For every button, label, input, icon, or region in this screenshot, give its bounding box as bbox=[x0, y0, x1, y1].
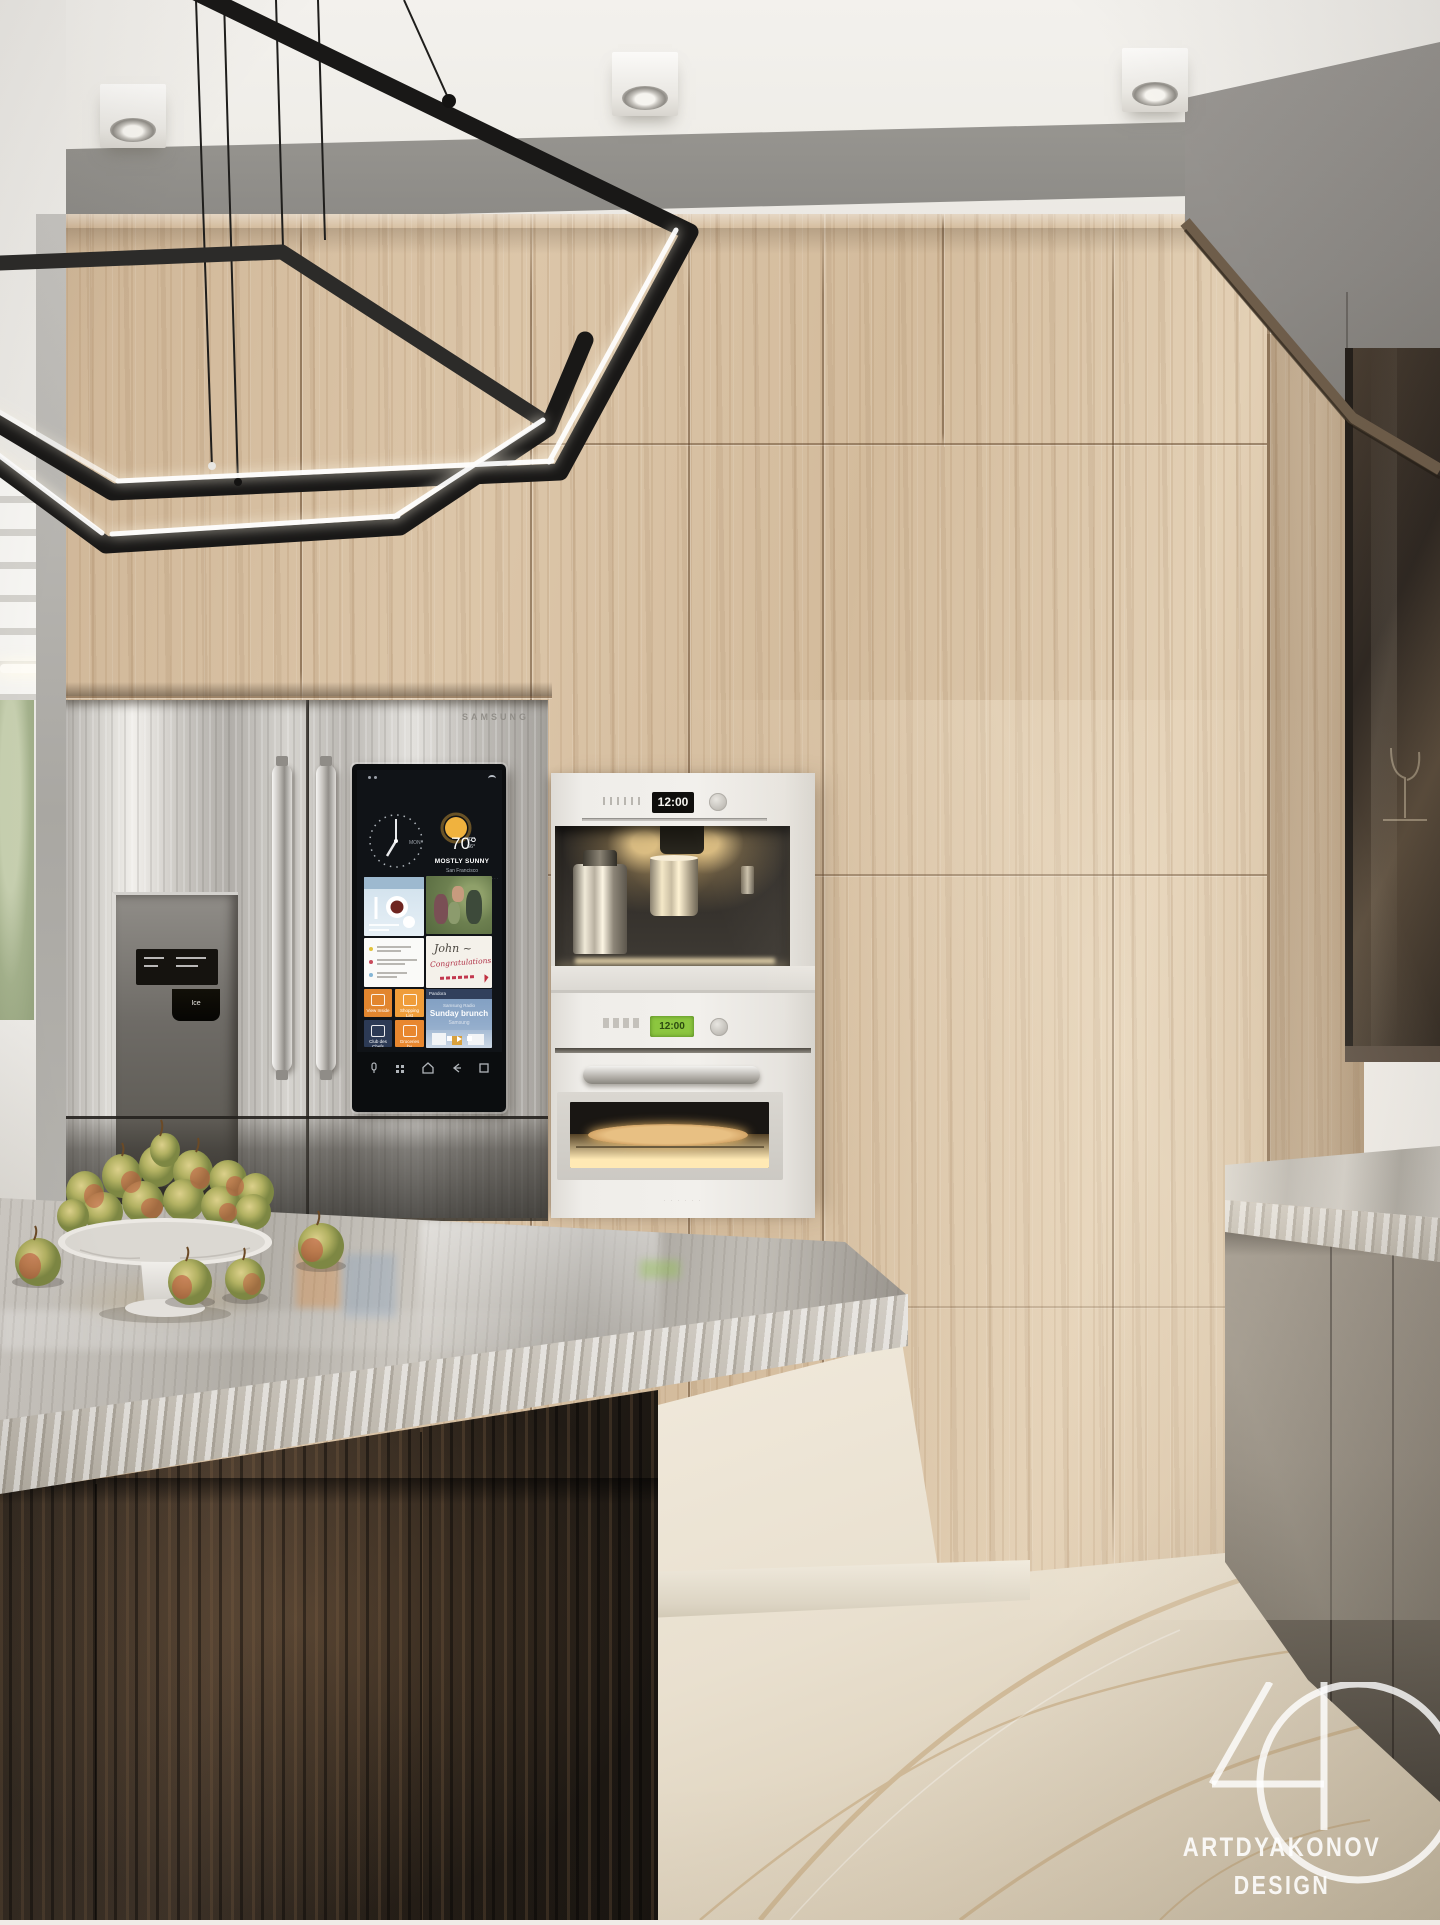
oven-logo: · · · · · · bbox=[551, 1198, 815, 1204]
oven-display: 12:00 bbox=[650, 1016, 694, 1037]
agenda-text-bar bbox=[377, 963, 405, 965]
pear-cluster bbox=[57, 1120, 274, 1233]
weather-temp: 70° bbox=[427, 834, 501, 854]
hexagon-ring-middle bbox=[0, 252, 548, 424]
kitchen-render: { "watermark": { "monogram": "AD", "line… bbox=[0, 0, 1440, 1920]
list-icon bbox=[403, 994, 417, 1006]
agenda-text-bar bbox=[377, 972, 407, 974]
pendant-lights bbox=[0, 0, 1440, 620]
coffee-machine-display: 12:00 bbox=[652, 792, 694, 813]
basket-icon bbox=[403, 1025, 417, 1037]
music-artist: Samsung bbox=[426, 1020, 492, 1026]
mic-icon[interactable] bbox=[369, 1062, 379, 1074]
prev-icon bbox=[447, 1036, 452, 1041]
app-tile-shopping-list[interactable]: Shopping List bbox=[395, 989, 424, 1017]
coffee-glass bbox=[650, 858, 698, 916]
oven-touch-controls[interactable] bbox=[603, 1018, 643, 1028]
playback-controls[interactable] bbox=[426, 1036, 492, 1042]
note-scribble bbox=[440, 975, 474, 980]
widget-header bbox=[364, 877, 424, 889]
music-widget[interactable]: Pandora Samsung Radio Sunday brunch Sams… bbox=[426, 989, 492, 1048]
agenda-text-bar bbox=[377, 959, 417, 961]
weather-updated: · · · bbox=[492, 876, 498, 881]
oven-handle[interactable] bbox=[583, 1066, 760, 1084]
counter-overhang-shadow bbox=[0, 1478, 660, 1504]
app-tile-view-inside[interactable]: View Inside bbox=[364, 989, 392, 1017]
agenda-widget[interactable] bbox=[364, 938, 424, 987]
fruit-bowl bbox=[0, 1100, 380, 1340]
studio-name: ARTDYAKONOV bbox=[1180, 1832, 1385, 1863]
music-app-name: Pandora bbox=[426, 989, 492, 999]
hexagon-ring-large bbox=[0, 0, 690, 492]
appliance-column: 12:00 12:00 · · · · · · bbox=[551, 773, 815, 1218]
fridge-right-handle[interactable] bbox=[316, 764, 336, 1072]
fridge-icon bbox=[371, 994, 385, 1006]
baking-tray bbox=[588, 1124, 748, 1146]
island-panel-seam bbox=[420, 1432, 422, 1920]
note-message: Congratulations! bbox=[430, 956, 490, 969]
family-hub-screen[interactable]: MON 70° 82°66° MOSTLY SUNNY San Francisc… bbox=[352, 764, 506, 1112]
coffee-touch-controls[interactable] bbox=[603, 797, 643, 805]
back-icon[interactable] bbox=[450, 1062, 462, 1074]
oven-door[interactable] bbox=[557, 1092, 783, 1180]
coffee-vent-slot bbox=[582, 818, 767, 821]
dispenser-panel bbox=[136, 949, 218, 985]
weather-condition: MOSTLY SUNNY bbox=[423, 858, 501, 865]
studio-subtitle: DESIGN bbox=[1180, 1870, 1385, 1901]
music-station: Samsung Radio bbox=[426, 1003, 492, 1008]
oven-knob[interactable] bbox=[710, 1018, 728, 1036]
agenda-dot bbox=[369, 973, 373, 977]
coffee-widget[interactable] bbox=[364, 877, 424, 936]
photo-figure bbox=[448, 902, 460, 924]
play-icon bbox=[457, 1036, 462, 1042]
note-pin-icon bbox=[480, 974, 488, 983]
cable-ball bbox=[208, 462, 216, 470]
pendant-cables bbox=[196, 0, 449, 484]
agenda-text-bar bbox=[377, 976, 397, 978]
family-photo-tile[interactable] bbox=[426, 876, 492, 934]
cable-ball bbox=[234, 478, 242, 486]
oven-panel-gap bbox=[555, 1048, 811, 1053]
hexagon-ring-low bbox=[0, 340, 585, 545]
screen-nav-bar[interactable] bbox=[357, 1058, 502, 1078]
cabinet-trim bbox=[1345, 1046, 1440, 1062]
niche-light bbox=[575, 958, 775, 964]
chef-icon bbox=[371, 1025, 385, 1037]
window-icon[interactable] bbox=[478, 1062, 490, 1074]
cabinet-bottom-seam bbox=[66, 696, 552, 698]
coffee-machine-knob[interactable] bbox=[709, 793, 727, 811]
screen-content: MON 70° 82°66° MOSTLY SUNNY San Francisc… bbox=[357, 770, 502, 1052]
app-tile-groceries[interactable]: Groceries by MasterCard bbox=[395, 1020, 424, 1047]
photo-figure bbox=[452, 886, 464, 902]
display-reflection bbox=[640, 1260, 680, 1278]
memo-note-tile[interactable]: John ~ Congratulations! bbox=[426, 936, 492, 988]
agenda-text-bar bbox=[377, 950, 401, 952]
music-title: Sunday brunch bbox=[426, 1009, 492, 1018]
ice-paddle[interactable]: Ice bbox=[172, 989, 220, 1021]
fridge-brand: SAMSUNG bbox=[462, 712, 529, 722]
widget-text-bar bbox=[369, 924, 399, 926]
next-icon bbox=[467, 1036, 472, 1041]
coffee-spout bbox=[660, 826, 704, 854]
agenda-text-bar bbox=[377, 946, 411, 948]
fridge-left-handle[interactable] bbox=[272, 764, 292, 1072]
svg-text:MON: MON bbox=[409, 840, 421, 846]
oven-rack bbox=[576, 1146, 764, 1148]
photo-figure bbox=[434, 894, 448, 924]
oven-window bbox=[570, 1102, 769, 1168]
agenda-dot bbox=[369, 960, 373, 964]
weather-location: San Francisco bbox=[423, 868, 501, 874]
coffee-niche bbox=[555, 826, 790, 966]
cabinet-shadow bbox=[66, 682, 552, 696]
window-greenery bbox=[0, 700, 34, 1020]
watermark-logo: ARTDYAKONOV DESIGN bbox=[1152, 1682, 1440, 1920]
weather-hi-lo: 82°66° bbox=[467, 837, 475, 851]
home-icon[interactable] bbox=[422, 1062, 434, 1074]
widget-text-bar bbox=[369, 929, 389, 931]
note-name: John ~ bbox=[434, 942, 472, 955]
apps-grid-icon[interactable] bbox=[395, 1062, 405, 1074]
cable-ball bbox=[442, 94, 456, 108]
coffee-machine-base bbox=[551, 966, 815, 993]
photo-figure bbox=[466, 890, 482, 924]
agenda-dot bbox=[369, 947, 373, 951]
island-panel-seam bbox=[95, 1484, 97, 1920]
small-glass bbox=[741, 866, 754, 894]
app-tile-club-des-chefs[interactable]: Club des Chefs bbox=[364, 1020, 392, 1047]
milk-jug bbox=[573, 864, 627, 954]
